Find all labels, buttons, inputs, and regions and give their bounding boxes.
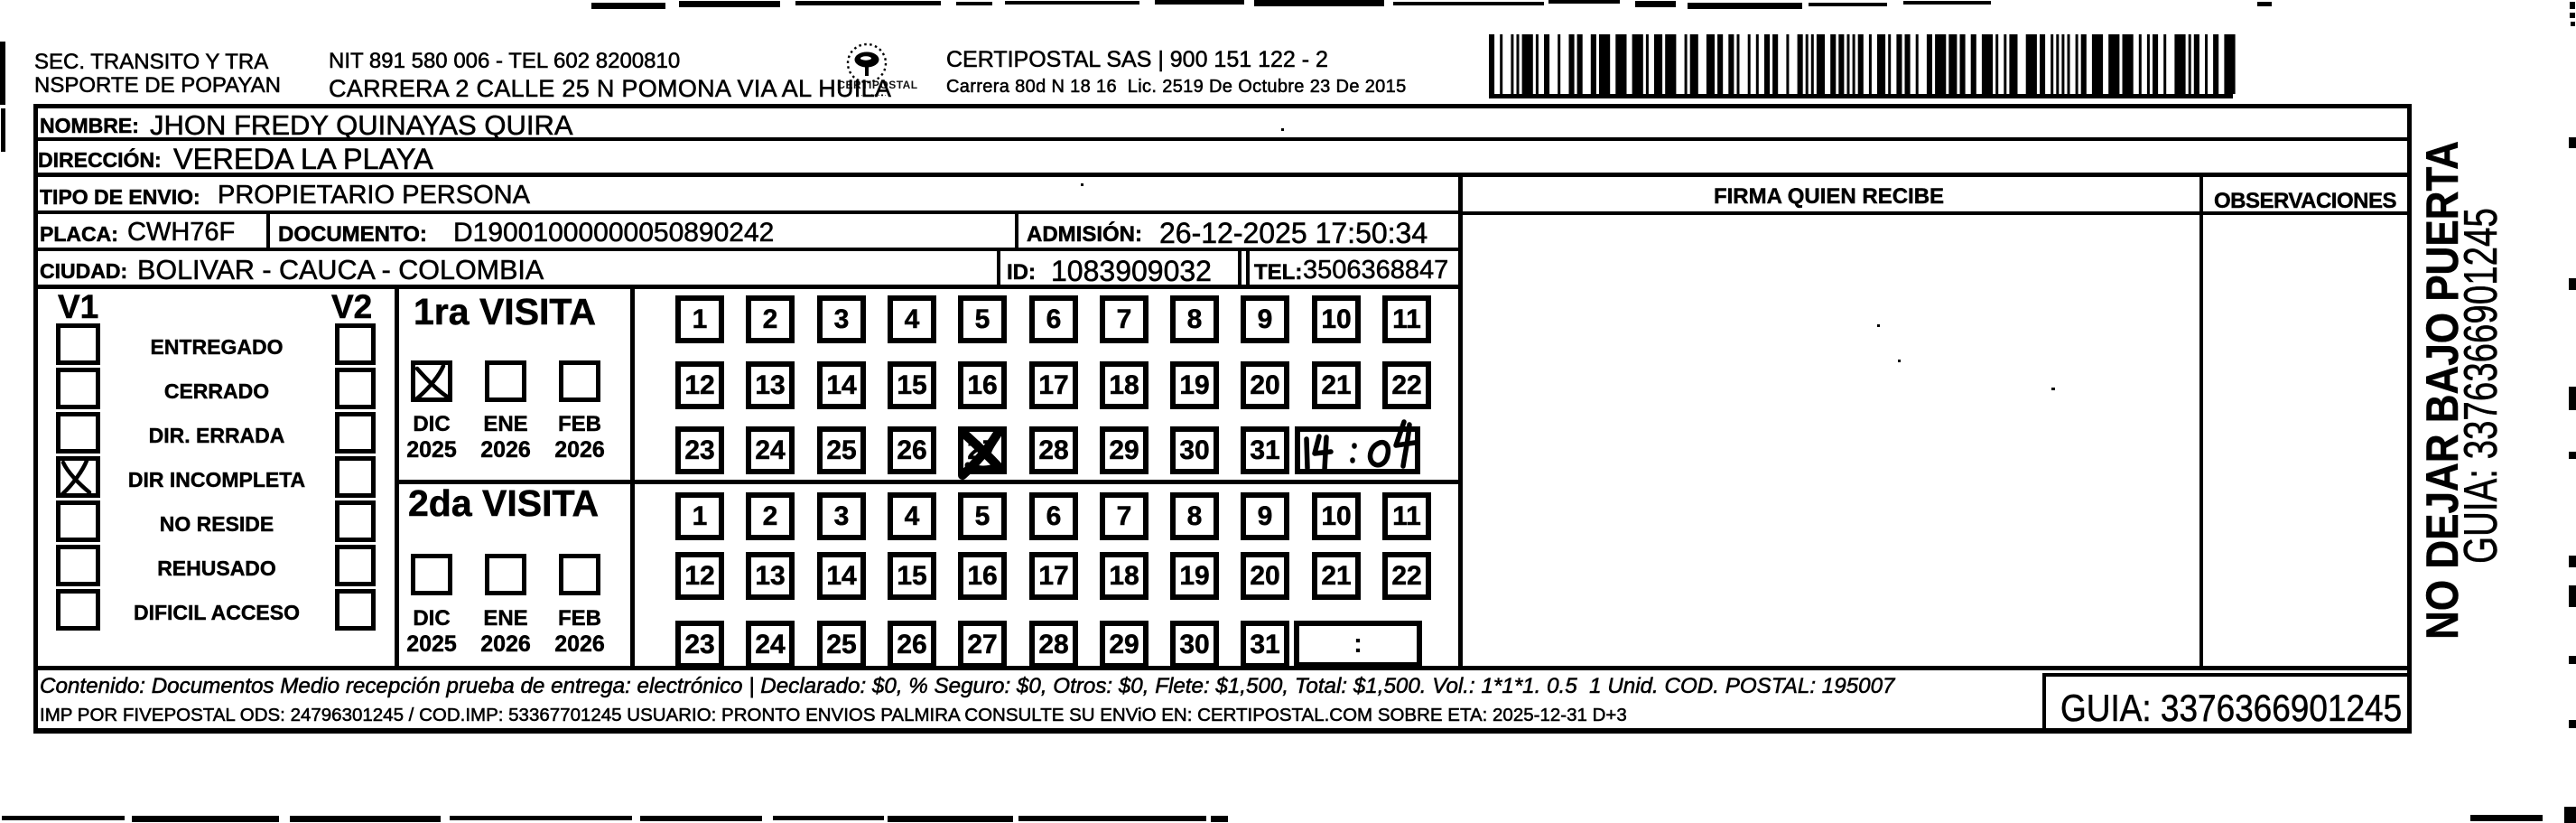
svg-text:·•·••·•··: ·•·••·•·· — [860, 91, 891, 99]
svg-text:CERTIPOSTAL: CERTIPOSTAL — [837, 79, 917, 91]
